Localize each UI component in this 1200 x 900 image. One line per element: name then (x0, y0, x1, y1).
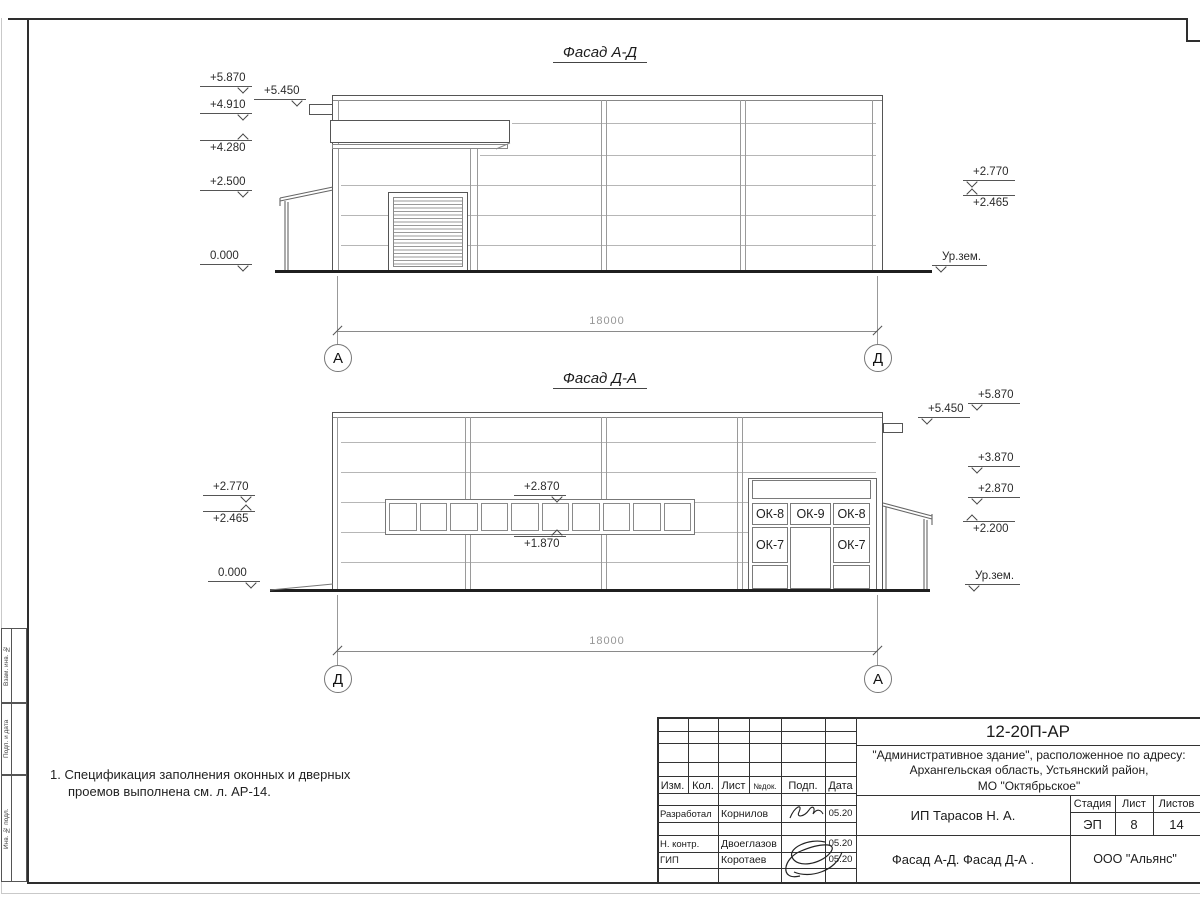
axis-bubble: А (324, 344, 352, 372)
col-header-izm: Изм. (657, 780, 688, 792)
elevation-mark: +5.870 (200, 72, 252, 87)
sheet-header: Лист (1115, 798, 1153, 810)
company-name: ООО "Альянс" (1070, 852, 1200, 866)
titleblock-line (657, 743, 856, 744)
note-text: 1. Спецификация заполнения оконных и две… (50, 766, 350, 800)
side-stamp-cell: Взам. инв. № (1, 628, 27, 703)
titleblock-line (856, 835, 1200, 836)
side-stamp-label: Подп. и дата (2, 706, 11, 772)
stage-value: ЭП (1070, 817, 1115, 832)
window-cell (572, 503, 600, 531)
facade2-vent (883, 423, 903, 433)
client-name: ИП Тарасов Н. А. (856, 808, 1070, 823)
facade2-panel-line (341, 472, 876, 473)
project-name-line3: МО "Октябрьское" (858, 779, 1200, 793)
storefront-panel (833, 565, 870, 589)
note-line1: 1. Спецификация заполнения оконных и две… (50, 766, 350, 783)
col-header-list: Лист (718, 780, 749, 792)
frame-top (8, 18, 1200, 20)
facade1-title: Фасад А-Д (490, 44, 710, 63)
elevation-mark: 0.000 (208, 567, 260, 582)
elevation-mark: +2.770 (963, 166, 1015, 181)
storefront-transom (752, 480, 871, 499)
frame-bottom (27, 882, 1200, 884)
elevation-mark: +3.870 (968, 452, 1020, 467)
facade1-column (740, 100, 746, 271)
axis-line (337, 276, 338, 346)
axis-line (877, 276, 878, 346)
drawing-sheet: Взам. инв. № Подп. и дата Инв. № подл. Ф… (0, 0, 1200, 900)
sheet-number: 8 (1115, 817, 1153, 832)
elevation-mark: Ур.зем. (965, 570, 1020, 585)
titleblock-line (856, 745, 1200, 746)
elevation-mark: +2.770 (203, 481, 255, 496)
dimension-label: 18000 (567, 315, 647, 327)
sheets-header: Листов (1153, 798, 1200, 810)
elevation-mark: +2.465 (963, 195, 1015, 210)
facade1-panel-line (341, 185, 876, 186)
side-stamp-cell: Подп. и дата (1, 703, 27, 775)
titleblock-line (1070, 812, 1200, 813)
facade1-panel-line (480, 155, 876, 156)
window-label-cell: ОК-8 (833, 503, 870, 525)
window-cell (603, 503, 631, 531)
facade1-parapet-line (333, 100, 882, 101)
titleblock-line (657, 868, 856, 869)
signer-date: 05.20 (825, 854, 856, 865)
signer-date: 05.20 (825, 808, 856, 819)
facade2-window-band (385, 499, 695, 535)
doc-number: 12-20П-АР (856, 722, 1200, 742)
frame-docnum-box (1186, 18, 1200, 42)
facade1-vent (309, 104, 333, 115)
elevation-mark: +1.870 (514, 536, 566, 551)
col-header-podp: Подп. (781, 780, 825, 792)
axis-line (337, 595, 338, 666)
elevation-mark: +5.870 (968, 389, 1020, 404)
signer-name: Коротаев (721, 854, 780, 866)
facade1-column-line (872, 100, 873, 271)
facade2-parapet-line (333, 417, 882, 418)
titleblock-line (657, 805, 856, 806)
frame-left (27, 18, 29, 882)
elevation-mark: +5.450 (254, 85, 306, 100)
titleblock-line (657, 852, 856, 853)
elevation-mark: +4.280 (200, 140, 252, 155)
facade1-canopy-soffit (332, 144, 508, 149)
sheet-title: Фасад А-Д. Фасад Д-А . (856, 852, 1070, 867)
titleblock-line (657, 835, 856, 836)
dimension-line (337, 331, 877, 332)
titleblock-line (657, 776, 856, 777)
titleblock-line (657, 822, 856, 823)
dimension-label: 18000 (567, 635, 647, 647)
elevation-mark: +5.450 (918, 403, 970, 418)
side-stamp-cell: Инв. № подл. (1, 775, 27, 882)
project-name-line2: Архангельская область, Устьянский район, (858, 763, 1200, 777)
sheets-total: 14 (1153, 817, 1200, 832)
facade2-ground-line (270, 589, 930, 592)
axis-bubble: Д (864, 344, 892, 372)
facade2-panel-line (341, 442, 876, 443)
elevation-mark: 0.000 (200, 250, 252, 265)
facade2-column (737, 417, 743, 591)
window-cell (450, 503, 478, 531)
signature-1 (790, 807, 823, 818)
elevation-mark: +2.870 (968, 483, 1020, 498)
facade1-column (601, 100, 607, 271)
elevation-mark: Ур.зем. (932, 251, 987, 266)
col-header-ndok: №док. (749, 782, 781, 791)
elevation-mark: +2.200 (963, 521, 1015, 536)
axis-line (877, 595, 878, 666)
facade1-roller-door (388, 192, 468, 272)
signer-role: ГИП (660, 855, 717, 866)
col-header-data: Дата (825, 780, 856, 792)
window-cell (633, 503, 661, 531)
facade1-entrance-canopy (330, 120, 510, 143)
dimension-line (337, 651, 877, 652)
signer-date: 05.20 (825, 838, 856, 849)
elevation-mark: +2.465 (203, 511, 255, 526)
facade2-title: Фасад Д-А (490, 370, 710, 389)
window-label-cell: ОК-9 (790, 503, 831, 525)
facade2-column-line (337, 417, 338, 591)
signer-role: Разработал (660, 809, 717, 820)
side-stamp-label: Взам. инв. № (2, 631, 11, 700)
project-name-line1: "Административное здание", расположенное… (858, 748, 1200, 762)
window-label-cell: ОК-7 (752, 527, 788, 563)
titleblock-line (657, 731, 856, 732)
signer-name: Корнилов (721, 808, 780, 820)
elevation-mark: +2.500 (200, 176, 252, 191)
titleblock-border (657, 717, 659, 882)
window-label-cell: ОК-7 (833, 527, 870, 563)
window-label-cell: ОК-8 (752, 503, 788, 525)
window-cell (481, 503, 509, 531)
titleblock-border (657, 717, 1200, 719)
window-cell (420, 503, 448, 531)
axis-bubble: А (864, 665, 892, 693)
window-cell (511, 503, 539, 531)
titleblock-line (718, 717, 719, 882)
titleblock-line (657, 793, 856, 794)
facade1-panel-line (512, 123, 876, 124)
signer-name: Двоеглазов (721, 838, 780, 850)
facade2-panel-line (341, 562, 748, 563)
col-header-kol: Кол. (688, 780, 718, 792)
storefront-door (790, 527, 831, 589)
paper-edge-bottom (1, 893, 1200, 894)
signer-role: Н. контр. (660, 839, 717, 850)
facade1-column (470, 147, 478, 271)
side-stamp-label: Инв. № подл. (2, 778, 11, 879)
titleblock-line (856, 795, 1200, 796)
window-cell (664, 503, 692, 531)
titleblock-line (781, 717, 782, 882)
elevation-mark: +2.870 (514, 481, 566, 496)
window-cell (542, 503, 570, 531)
elevation-mark: +4.910 (200, 99, 252, 114)
roller-door-slats (393, 197, 463, 267)
stage-header: Стадия (1070, 798, 1115, 810)
window-cell (389, 503, 417, 531)
note-line2: проемов выполнена см. л. АР-14. (68, 783, 350, 800)
titleblock-line (657, 762, 856, 763)
facade1-ground-line (275, 270, 932, 273)
storefront-panel (752, 565, 788, 589)
axis-bubble: Д (324, 665, 352, 693)
